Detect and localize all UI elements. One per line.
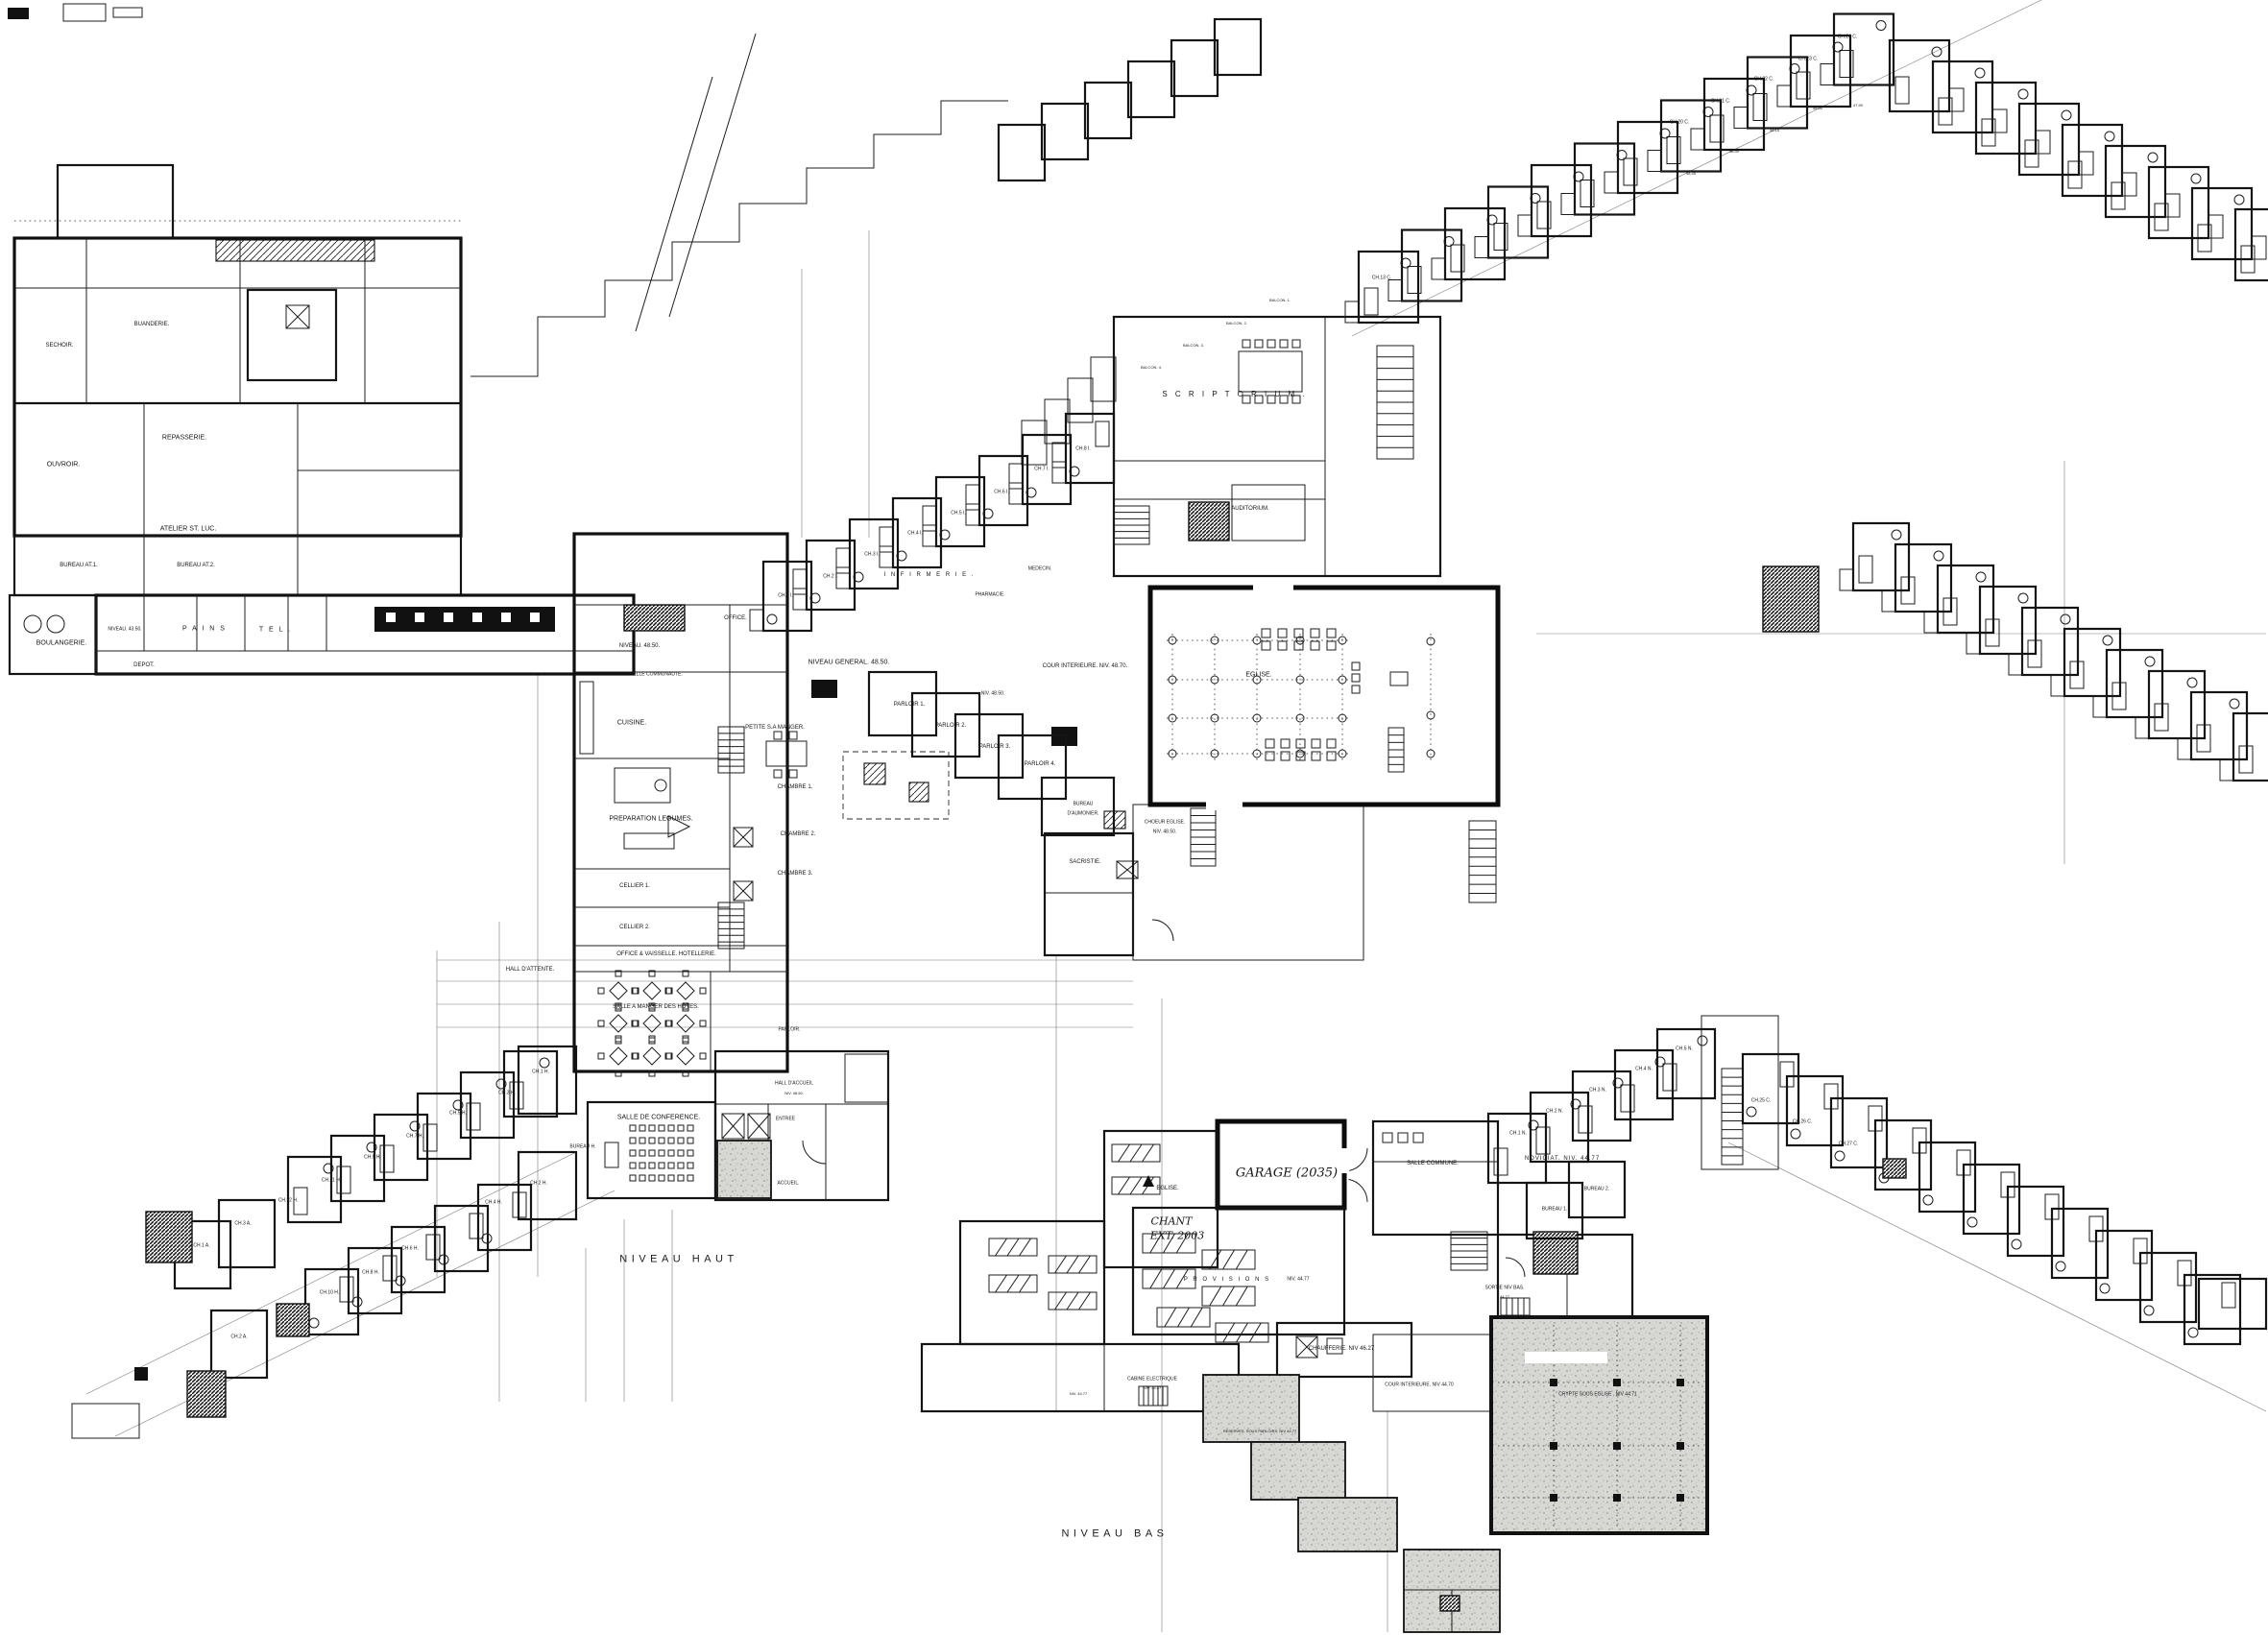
room-label: OFFICE VAISSELLE COMMUNAUTE. xyxy=(600,673,682,678)
room-label: NIV. 44.77 xyxy=(1287,1278,1309,1283)
room-label: CHOEUR EGLISE. xyxy=(1145,821,1186,826)
room-label: NIVEAU GENERAL. 48.50. xyxy=(808,660,890,666)
room-label: ATELIER ST. LUC. xyxy=(160,526,217,533)
room-label: SALLE COMMUNE. xyxy=(1407,1161,1459,1166)
room-label: CH.2 H. xyxy=(530,1182,547,1187)
room-label: PARLOIR. xyxy=(779,1028,801,1033)
room-label: ENTREE xyxy=(776,1118,795,1122)
room-label: CH.4 H. xyxy=(485,1201,502,1206)
room-label: CH.2 I. xyxy=(823,575,838,580)
room-label: BUREAU 1. xyxy=(1542,1208,1567,1213)
room-label: 47.90 xyxy=(1853,104,1863,108)
room-label: CH.4 N. xyxy=(1635,1068,1653,1072)
room-label: OUVROIR. xyxy=(47,462,81,469)
room-label: AUDITORIUM. xyxy=(1231,506,1269,512)
room-label: COUR INTERIEURE. NIV. 48.70. xyxy=(1043,663,1127,669)
room-label: 48.15 xyxy=(1770,129,1779,132)
room-label: CH.8 I. xyxy=(1075,447,1091,452)
room-label: CRYPTE SOUS EGLISE . NIV 44.71 xyxy=(1558,1393,1637,1398)
room-label: CHAUFFERIE. NIV 46.27 xyxy=(1309,1346,1374,1352)
room-label: OFFICE & VAISSELLE. HOTELLERIE. xyxy=(616,951,716,957)
room-label: CH.1 A. xyxy=(193,1244,209,1249)
room-label: CH.6 H. xyxy=(401,1247,419,1252)
room-label: BALCON. 1. xyxy=(1269,299,1291,302)
room-label: PHARMACIE. xyxy=(975,593,1004,598)
room-label: 44.77 xyxy=(1500,1295,1509,1299)
room-label: BOULANGERIE. xyxy=(36,640,87,647)
room-label: CH.1 I. xyxy=(778,594,793,599)
room-label: CH.1 N. xyxy=(1509,1132,1527,1137)
room-label: NIV. 48.50. xyxy=(981,692,1005,697)
room-label: GARAGE (2035) xyxy=(1236,1167,1338,1180)
room-label: CH.7 H. xyxy=(406,1135,423,1140)
room-label: REPASSERIE. xyxy=(162,435,206,442)
room-label: CH.22 C. xyxy=(1754,78,1774,83)
room-label: SECHOIR. xyxy=(45,343,73,349)
room-label: BALCON. 3. xyxy=(1183,344,1204,348)
room-label: 48.30 xyxy=(1729,150,1739,154)
room-label: CH.3 N. xyxy=(1589,1089,1606,1094)
blueprint-canvas: BUANDERIE.SECHOIR.OUVROIR.REPASSERIE.ATE… xyxy=(0,0,2268,1635)
room-label: CH.20 C. xyxy=(1670,121,1690,126)
room-label: CH.4 I. xyxy=(907,532,923,537)
room-label: BALCON. 2. xyxy=(1226,322,1247,325)
room-label: CH.21 C. xyxy=(1711,100,1731,105)
room-label: SALLE DE CONFERENCE. xyxy=(617,1115,700,1121)
room-label: BUREAU 2. xyxy=(1584,1188,1609,1192)
room-label: PREPARATION LEGUMES. xyxy=(609,816,692,823)
room-label: PARLOIR 2. xyxy=(935,723,967,729)
room-label: CH.25 C. xyxy=(1751,1099,1772,1104)
room-label: BALCON. 4. xyxy=(1141,366,1162,370)
room-label: CH.7 I. xyxy=(1034,468,1050,472)
room-label: CH.6 I. xyxy=(994,491,1009,495)
room-label: MEDECIN. xyxy=(1028,567,1051,572)
room-label: CH.1 H. xyxy=(532,1070,549,1075)
room-label: EXT. 2003 xyxy=(1150,1231,1205,1241)
room-label: CH.10 H. xyxy=(320,1291,340,1296)
room-label: CUISINE. xyxy=(617,720,646,727)
room-label: HALL D'ATTENTE. xyxy=(506,967,555,973)
room-label: BUREAU AT.2. xyxy=(177,563,215,568)
room-label: OFFICE. xyxy=(724,615,747,621)
room-label: SALLE A MANGER DES HOTES. xyxy=(613,1004,699,1010)
room-label: S C R I P T O R I U M . xyxy=(1162,391,1307,398)
room-label: CHANT xyxy=(1151,1216,1193,1227)
room-label: PARLOIR 1. xyxy=(894,702,926,708)
room-label: CH.2 N. xyxy=(1546,1110,1563,1115)
room-label: BUANDERIE. xyxy=(134,322,170,327)
room-label: DEPOT. xyxy=(133,662,155,668)
room-label: PARLOIR 4. xyxy=(1025,761,1056,767)
level-label-niveau-bas: NIVEAU BAS xyxy=(1061,1529,1168,1540)
room-label: NOVICIAT. NIV. 44.77 xyxy=(1525,1156,1600,1162)
room-label: NIV. 48.50. xyxy=(784,1092,804,1095)
room-label: NIV. 44.77 xyxy=(1070,1392,1088,1396)
room-label: BUREAU xyxy=(1074,803,1094,807)
room-label: ACCUEIL. xyxy=(777,1182,799,1187)
room-label: CH.3 I. xyxy=(864,553,880,558)
room-label: EGLISE. xyxy=(1156,1186,1178,1191)
room-label: RESERVES. SOUS PARLOIRS. NIV 44.77 xyxy=(1223,1430,1296,1433)
room-label: EGLISE. xyxy=(1245,672,1271,679)
room-label: CH.23 C. xyxy=(1798,58,1819,62)
room-label: CH.26 C. xyxy=(1793,1120,1813,1125)
room-label: CH.13 C. xyxy=(1372,277,1392,281)
room-label: CHAMBRE 2. xyxy=(781,831,816,837)
room-label: NIVEAU. 48.50. xyxy=(619,643,660,649)
room-label: P R O V I S I O N S xyxy=(1184,1277,1270,1283)
room-label: NIV. 48.50. xyxy=(1153,830,1177,835)
room-label: CH.3 A. xyxy=(234,1222,251,1227)
room-label: CHAMBRE 3. xyxy=(778,871,813,877)
room-label: CH.5 I. xyxy=(951,512,966,517)
room-label: T E L . xyxy=(259,627,292,634)
room-label: CH.5 H. xyxy=(449,1112,467,1117)
room-labels-layer: BUANDERIE.SECHOIR.OUVROIR.REPASSERIE.ATE… xyxy=(0,0,2268,1635)
room-label: CH.27 C. xyxy=(1839,1142,1859,1147)
room-label: HALL D'ACCUEIL xyxy=(775,1082,813,1087)
room-label: CHAMBRE 1. xyxy=(778,784,813,790)
room-label: CH.8 H. xyxy=(362,1271,379,1276)
room-label: CH.11 H. xyxy=(322,1179,341,1184)
room-label: CH.12 H. xyxy=(278,1199,299,1204)
room-label: P A I N S xyxy=(182,626,227,633)
room-label: SORTIE NIV BAS. xyxy=(1484,1286,1524,1291)
room-label: 48.00 xyxy=(1813,107,1822,110)
room-label: BUREAU AT.1. xyxy=(60,563,98,568)
room-label: PETITE S.A MANGER. xyxy=(745,725,805,731)
room-label: I N F I R M E R I E . xyxy=(883,572,975,578)
room-label: 48.45 xyxy=(1686,172,1696,176)
room-label: CH.24 C. xyxy=(1838,36,1858,40)
room-label: D'AUMONIER. xyxy=(1068,812,1099,817)
room-label: COUR INTERIEURE. NIV 44.70 xyxy=(1385,1383,1453,1388)
room-label: CABINE ELECTRIQUE xyxy=(1127,1378,1177,1383)
room-label: SACRISTIE. xyxy=(1069,859,1100,865)
room-label: CH.3 H. xyxy=(498,1092,516,1096)
room-label: BUREAU H. xyxy=(569,1145,595,1150)
room-label: NIV. 44.27 xyxy=(1144,1386,1162,1390)
room-label: NIVEAU. 43.50. xyxy=(108,628,141,633)
room-label: PARLOIR 3. xyxy=(979,744,1011,750)
room-label: CH.9 H. xyxy=(364,1156,381,1161)
room-label: CH.2 A. xyxy=(230,1335,247,1340)
room-label: CELLIER 2. xyxy=(619,925,650,930)
level-label-niveau-haut: NIVEAU HAUT xyxy=(619,1255,737,1265)
room-label: CH.5 N. xyxy=(1676,1047,1693,1052)
room-label: CELLIER 1. xyxy=(619,883,650,889)
